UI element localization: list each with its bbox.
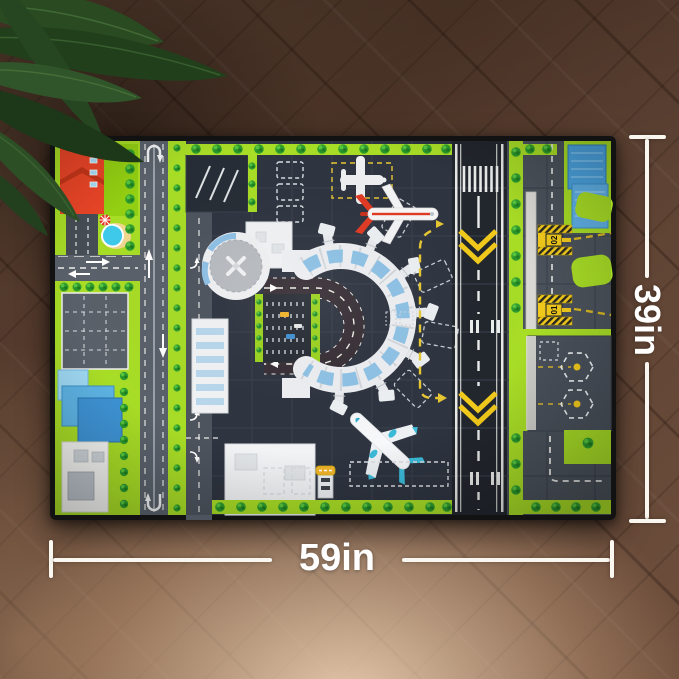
height-dimension-text: 39in bbox=[626, 284, 668, 356]
height-dim-line-bottom bbox=[645, 362, 649, 519]
height-dim-line-top bbox=[645, 139, 649, 278]
width-dim-line-right bbox=[402, 558, 610, 562]
product-photo-scene: { "dimensions": { "width_label": "59in",… bbox=[0, 0, 679, 679]
width-dimension-text: 59in bbox=[299, 537, 375, 580]
airport-play-mat: 02 01 bbox=[50, 136, 616, 520]
width-dim-line-left bbox=[53, 558, 272, 562]
width-dim-cap-right bbox=[610, 540, 614, 578]
width-dimension-label: 59in bbox=[272, 534, 402, 582]
height-dimension-label: 39in bbox=[613, 282, 679, 358]
mat-lighting-overlay bbox=[55, 141, 611, 515]
play-mat-graphic: 02 01 bbox=[50, 136, 616, 520]
height-dim-cap-bottom bbox=[629, 519, 666, 523]
